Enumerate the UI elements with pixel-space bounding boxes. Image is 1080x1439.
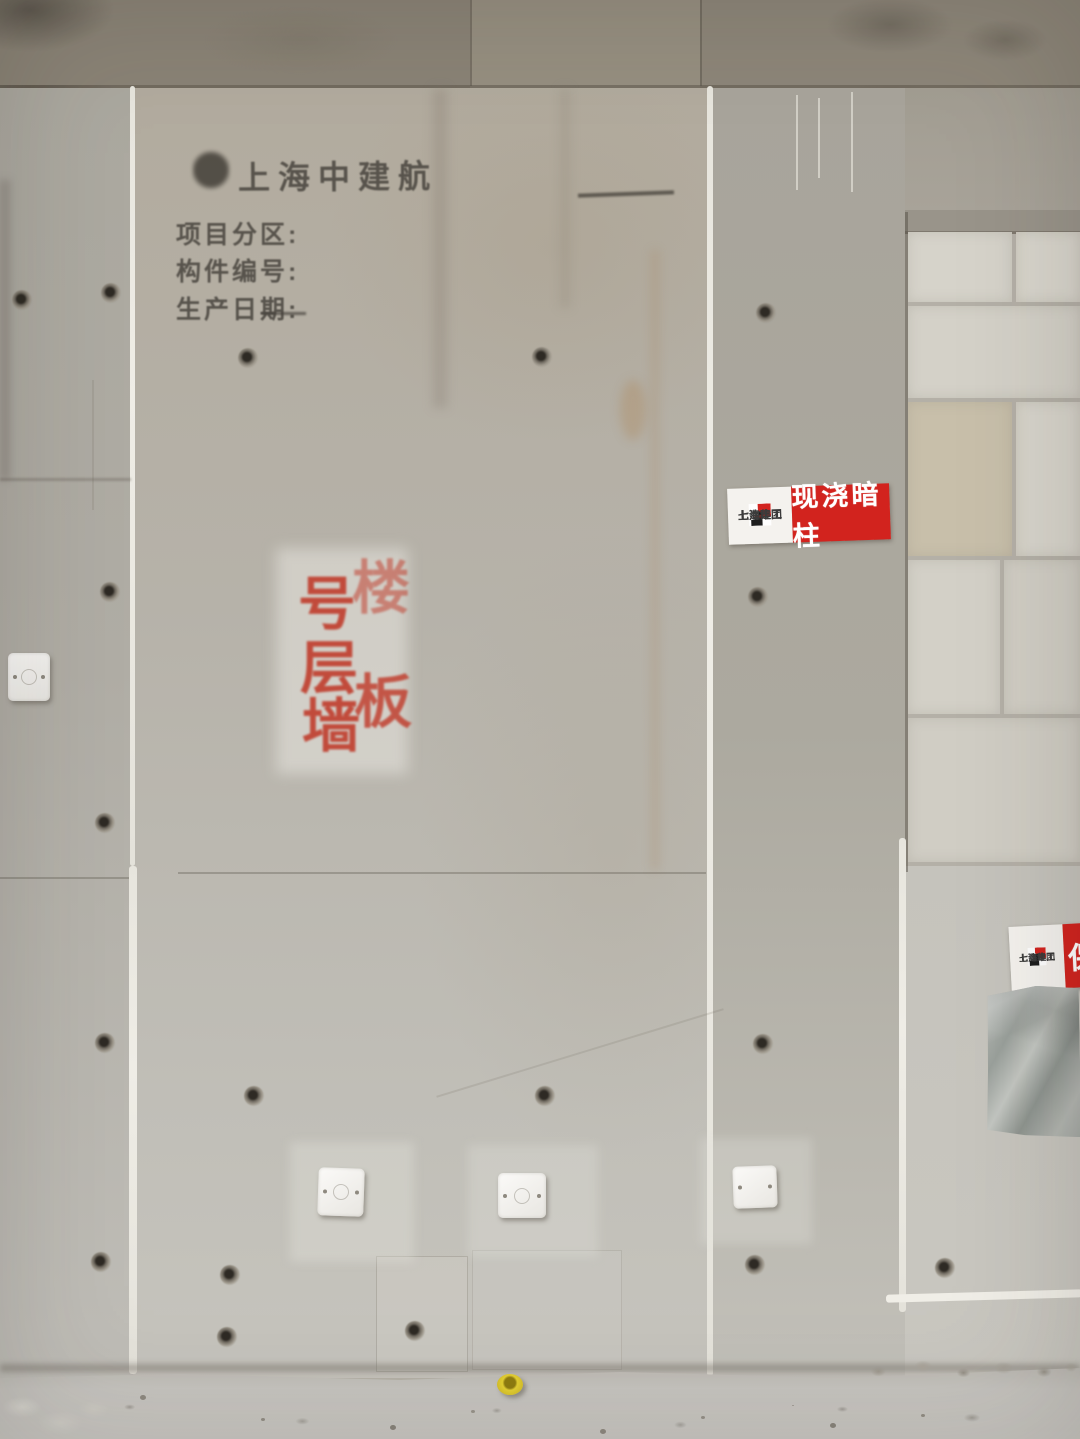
screw-dot (768, 1184, 772, 1188)
masonry-block (908, 232, 1012, 302)
formwork-tie-hole (405, 1321, 425, 1341)
column-block-joint (905, 212, 908, 872)
formwork-tie-hole (100, 582, 120, 602)
concrete-panel-left (0, 86, 133, 1378)
screw-dot (355, 1190, 359, 1194)
masonry-block (908, 718, 1080, 862)
stencil-field-production-date: 生产日期: (176, 290, 299, 326)
screw-dot (41, 675, 45, 679)
formwork-tie-hole (95, 1033, 115, 1053)
partial-sign-title-text: 保 (1067, 932, 1080, 978)
spray-char-qiang: 墙 (302, 698, 360, 756)
spray-char-lou: 楼 (352, 560, 410, 618)
shadow-edge (0, 180, 10, 480)
formwork-tie-hole (91, 1252, 111, 1272)
stencil-title: 上海中建航 (238, 151, 438, 199)
formwork-tie-hole (95, 813, 115, 833)
formwork-tie-hole (535, 1086, 555, 1106)
knockout-circle (514, 1188, 530, 1204)
concrete-beam-top-right (905, 86, 1080, 212)
sign-title-text: 现浇暗柱 (791, 472, 892, 553)
ceiling-formwork-joint (470, 0, 472, 86)
masonry-block (908, 306, 1080, 398)
formwork-tie-hole (12, 290, 32, 310)
rust-stain (652, 250, 658, 870)
spray-char-ceng: 层 (300, 640, 358, 698)
zhongjianhang-stamp-logo-icon (192, 150, 230, 190)
yellow-pipe-cap (497, 1374, 523, 1395)
rust-stain (620, 380, 646, 440)
screw-dot (323, 1189, 327, 1193)
foil-patch (985, 985, 1080, 1139)
formwork-tie-hole (532, 347, 552, 367)
formwork-tie-hole (238, 348, 258, 368)
formwork-tie-hole (244, 1086, 264, 1106)
paint-drip (796, 95, 798, 190)
formwork-tie-hole (756, 303, 776, 323)
rubble-debris (856, 1352, 1080, 1384)
stencil-blank-line (262, 312, 306, 315)
paint-drip (851, 92, 853, 192)
water-stain (560, 88, 570, 308)
water-stain (433, 88, 447, 408)
junction-box-cover (317, 1167, 365, 1217)
scribe-line (178, 872, 706, 874)
sign-company-section: 上海建工 七建集团 (727, 487, 793, 545)
paint-drip (818, 98, 820, 178)
scribe-line (0, 877, 129, 879)
junction-box-cover (732, 1165, 777, 1209)
sign-company-line2: 七建集团 (738, 509, 782, 523)
hairline-crack (92, 380, 94, 510)
masonry-block (908, 560, 1000, 714)
stencil-field-project-zone: 项目分区: (176, 215, 299, 251)
formwork-tie-hole (753, 1034, 773, 1054)
repair-patch (376, 1256, 468, 1372)
panel-seam-strip (899, 838, 906, 1312)
sign-title-section: 现浇暗柱 (791, 483, 891, 542)
screw-dot (503, 1194, 507, 1198)
junction-box-cover (8, 653, 50, 701)
panel-joint-line (0, 478, 131, 481)
partial-sign: 上海建工 七建集团 保 (1008, 917, 1080, 991)
construction-wall-photo: 上海中建航 项目分区: 构件编号: 生产日期: 号 楼 层 墙 板 上海建工 七… (0, 0, 1080, 1439)
bond-beam-band (905, 210, 1080, 234)
block-wall (905, 232, 1080, 866)
formwork-tie-hole (748, 587, 768, 607)
debris-pile (0, 1386, 110, 1439)
panel-seam-strip (130, 86, 135, 866)
knockout-circle (333, 1184, 350, 1201)
ceiling-formwork-joint (700, 0, 702, 86)
masonry-block (1016, 232, 1080, 302)
partial-sign-title-section: 保 (1062, 917, 1080, 988)
screw-dot (537, 1194, 541, 1198)
masonry-block (1004, 560, 1080, 714)
junction-box-cover (498, 1173, 546, 1218)
formwork-tie-hole (935, 1258, 955, 1278)
formwork-tie-hole (745, 1255, 765, 1275)
screw-dot (738, 1185, 742, 1189)
knockout-circle (21, 669, 37, 685)
stencil-field-component-no: 构件编号: (176, 252, 299, 288)
masonry-block (1016, 402, 1080, 556)
screw-dot (13, 675, 17, 679)
spray-char-ban: 板 (354, 674, 412, 732)
partial-sign-company-section: 上海建工 七建集团 (1008, 924, 1065, 991)
spray-char-hao: 号 (298, 576, 356, 634)
repair-patch (472, 1250, 622, 1370)
ceiling-slab (0, 0, 1080, 88)
formwork-tie-hole (101, 283, 121, 303)
panel-seam-strip (129, 866, 137, 1374)
masonry-block (908, 402, 1012, 556)
partial-sign-company-line2: 七建集团 (1019, 952, 1055, 964)
formwork-tie-hole (220, 1265, 240, 1285)
cast-column-sign: 上海建工 七建集团 现浇暗柱 (727, 483, 891, 545)
scattered-stones (140, 1395, 146, 1400)
formwork-tie-hole (217, 1327, 237, 1347)
